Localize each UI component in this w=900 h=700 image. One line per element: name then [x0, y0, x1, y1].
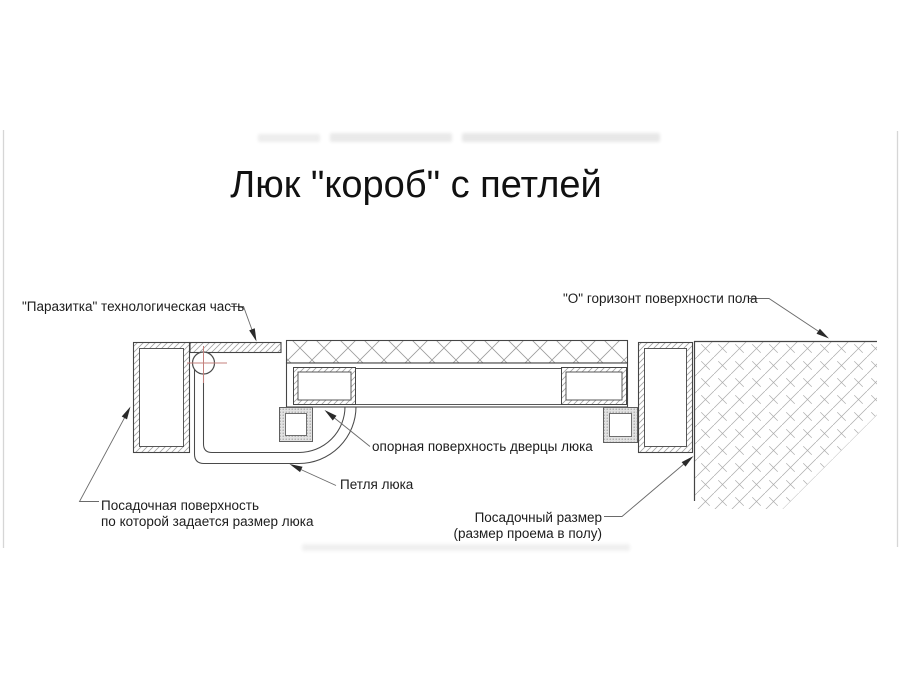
- page-title: Люк "короб" с петлей: [230, 164, 601, 206]
- label-hinge: Петля люка: [340, 477, 414, 492]
- right-frame-inner: [645, 349, 687, 447]
- hinge-block-left: [280, 408, 313, 442]
- label-parasitka: "Паразитка" технологическая часть: [22, 299, 244, 314]
- label-seating-surface-line1: Посадочная поверхность: [101, 498, 259, 513]
- door-profile-right-inner: [566, 372, 622, 400]
- hinge-block-right: [604, 408, 638, 443]
- left-frame: [134, 343, 190, 453]
- door-sheet: [356, 369, 562, 405]
- faded-watermark-bottom: [302, 544, 630, 551]
- label-seating-surface-line2: по которой задается размер люка: [101, 514, 314, 529]
- hatch-diagram: Люк "короб" с петлей: [0, 0, 900, 700]
- door-top-slab: [287, 341, 628, 364]
- label-seating-size-line2: (размер проема в полу): [453, 526, 602, 541]
- left-frame-inner: [140, 349, 184, 447]
- door-profile-left-inner: [298, 372, 351, 400]
- door-leaf: [287, 341, 628, 408]
- right-frame: [639, 343, 693, 453]
- label-floor-horizon: "О" горизонт поверхности пола: [563, 291, 758, 306]
- label-door-bearing: опорная поверхность дверцы люка: [372, 439, 593, 454]
- label-seating-size-line1: Посадочный размер: [475, 510, 602, 525]
